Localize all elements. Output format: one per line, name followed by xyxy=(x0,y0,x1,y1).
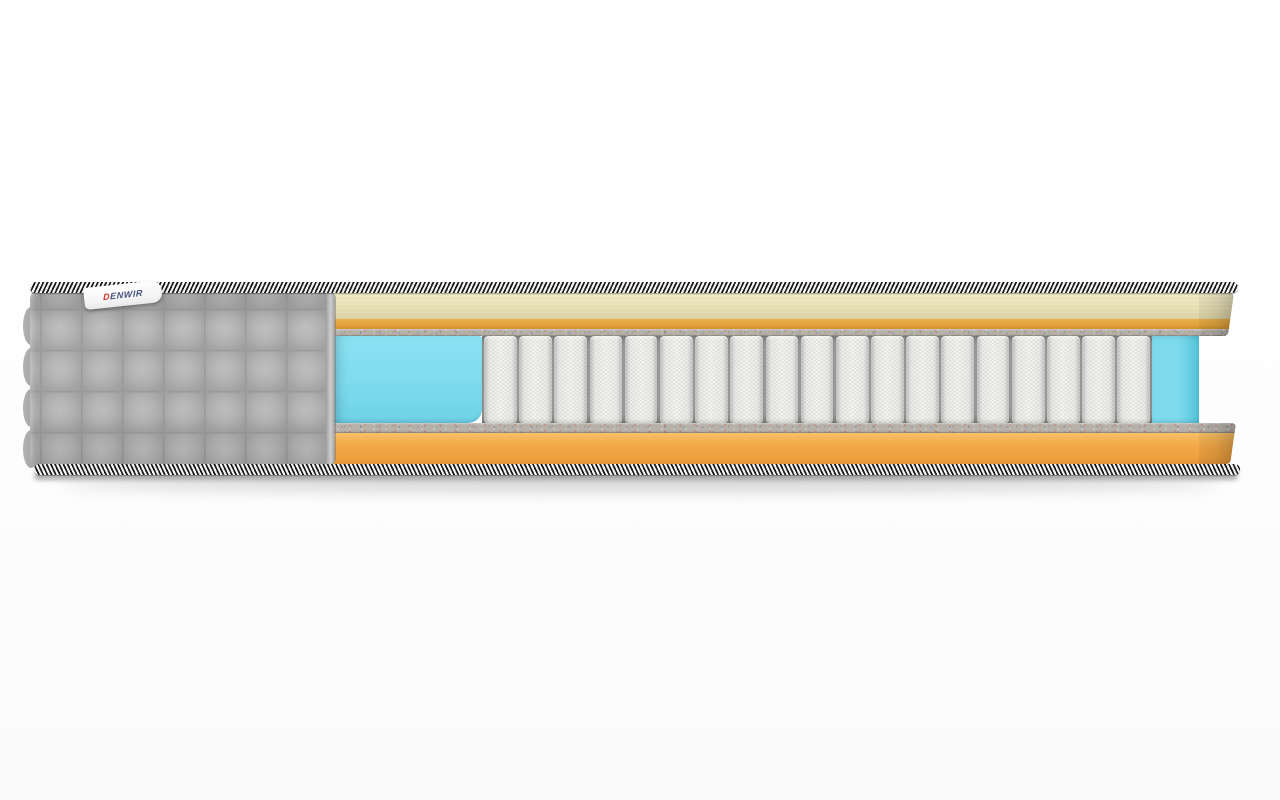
spring-coil xyxy=(801,336,834,423)
spring-coil xyxy=(554,336,587,423)
spring-coil xyxy=(766,336,799,423)
spring-coil xyxy=(695,336,728,423)
piping-bottom xyxy=(34,464,1240,475)
mattress-right-end-bottom xyxy=(1193,423,1236,464)
product-scene: DENWIR xyxy=(0,0,1280,800)
blue-foam-block-right xyxy=(1152,336,1199,423)
mattress-cutaway-render: DENWIR xyxy=(30,282,1238,475)
orange-foam-strip xyxy=(332,319,1199,329)
mattress-right-end-top xyxy=(1193,293,1234,336)
spring-coil xyxy=(977,336,1010,423)
spring-coil xyxy=(906,336,939,423)
spring-coil xyxy=(941,336,974,423)
spring-coil xyxy=(1117,336,1150,423)
spring-coil xyxy=(730,336,763,423)
spring-coil xyxy=(871,336,904,423)
spring-coil xyxy=(1012,336,1045,423)
base-foam-layer xyxy=(332,433,1199,464)
quilted-cover xyxy=(30,286,334,471)
top-comfort-layer xyxy=(332,293,1199,320)
spring-coil xyxy=(484,336,517,423)
spring-coil xyxy=(519,336,552,423)
end-face-shading xyxy=(1193,423,1236,464)
spring-coil xyxy=(1082,336,1115,423)
end-face-shading xyxy=(1193,293,1234,336)
blue-foam-block-left xyxy=(332,336,482,423)
fabric-cut-edge xyxy=(326,293,336,464)
felt-layer-bottom xyxy=(332,423,1199,433)
spring-coil xyxy=(836,336,869,423)
spring-coil xyxy=(1047,336,1080,423)
spring-coil xyxy=(590,336,623,423)
felt-layer-top xyxy=(332,329,1199,336)
spring-coil xyxy=(660,336,693,423)
brand-label-text: DENWIR xyxy=(103,288,143,302)
piping-top xyxy=(30,282,1238,293)
spring-coil xyxy=(625,336,658,423)
pocket-spring-coils xyxy=(482,336,1152,423)
